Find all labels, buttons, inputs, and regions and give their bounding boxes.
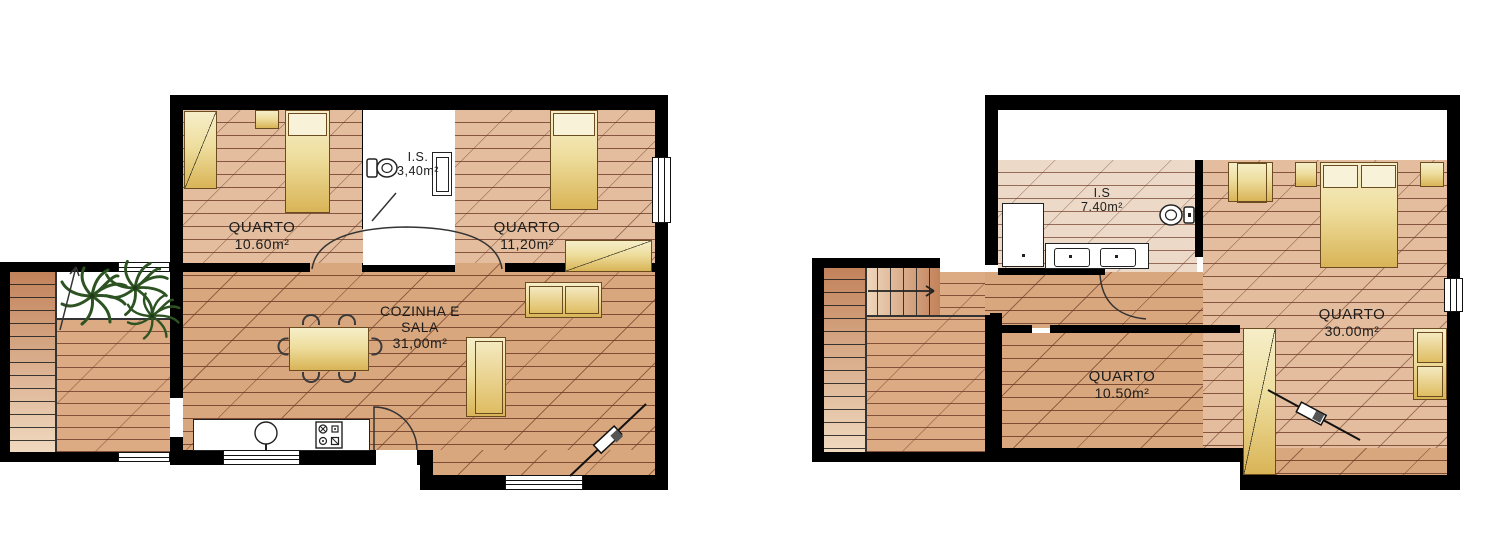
bathroom2-name: I.S — [1070, 186, 1134, 200]
nightstand-master-left — [1295, 162, 1317, 187]
living-name-line2: SALA — [358, 319, 482, 335]
floor-plan-canvas: QUARTO 10.60m² I.S. 3,40m² QUARTO 11,20m… — [0, 0, 1507, 557]
dining-chair — [278, 338, 289, 356]
gf-wall-top — [170, 95, 668, 110]
toilet-upper-icon — [1158, 202, 1196, 228]
bedroom1-area: 10.60m² — [202, 236, 322, 252]
gf-wall-bottom-kitchen-a — [170, 450, 223, 465]
wardrobe-bedroom1 — [184, 111, 217, 189]
uf-wall-bottom-right — [1240, 475, 1460, 490]
bed2-pillow — [553, 113, 595, 136]
stair-rail-line-upper — [865, 267, 867, 452]
bed-bedroom2 — [550, 110, 598, 210]
uf-bath-wall-right — [1195, 160, 1203, 257]
bathroom2-area: 7.40m² — [1070, 200, 1134, 214]
small-bedroom-wall-top-b — [1050, 325, 1240, 333]
stove-icon — [315, 421, 343, 449]
sofa-master — [1413, 328, 1447, 400]
uf-wall-left-upper — [985, 95, 998, 265]
vanity-sink — [1054, 248, 1090, 267]
bedroom2-name: QUARTO — [467, 219, 587, 236]
living-name-line1: COZINHA E — [358, 303, 482, 319]
stair-rail-line — [55, 272, 57, 452]
living-area: 31,00m² — [358, 335, 482, 351]
vanity-sink-dot — [1069, 255, 1072, 258]
gf-wall-bottom-right-b — [583, 475, 668, 490]
uf-wall-right-lower — [1447, 312, 1460, 478]
stairwell-wall-left — [812, 258, 824, 462]
gf-wall-left-mid — [170, 267, 183, 398]
master-name: QUARTO — [1292, 306, 1412, 323]
small-bedroom-name: QUARTO — [1062, 368, 1182, 385]
dining-table — [289, 327, 369, 371]
bathroom2-label: I.S 7.40m² — [1070, 186, 1134, 214]
master-label: QUARTO 30.00m² — [1292, 306, 1412, 339]
terrace-wall-left — [0, 262, 10, 462]
nightstand-master-right — [1420, 162, 1444, 187]
sofa-two-seat — [525, 282, 602, 318]
master-pillow — [1323, 165, 1358, 188]
terrace-deck-floor — [55, 320, 170, 452]
kitchen-sink-icon — [248, 420, 284, 452]
wardrobe-master-top — [1228, 162, 1273, 202]
small-bedroom-label: QUARTO 10.50m² — [1062, 368, 1182, 401]
bathroom1-area: 3,40m² — [383, 164, 453, 178]
hall-floor — [985, 272, 1240, 328]
vanity-sink-dot — [1115, 255, 1118, 258]
window-terrace-top — [118, 262, 170, 272]
stairwell-wall-bottom — [812, 452, 985, 462]
bedroom1-label: QUARTO 10.60m² — [202, 219, 322, 252]
window-terrace-bottom — [118, 452, 170, 462]
uf-wall-bottom-mid — [985, 448, 1240, 462]
bathroom1-label: I.S. 3,40m² — [383, 150, 453, 178]
bathroom1-name: I.S. — [383, 150, 453, 164]
gf-wall-bottom-right-a — [433, 475, 505, 490]
gf-wall-left-upper — [170, 95, 183, 267]
sofa-master-cushion — [1417, 366, 1443, 397]
dining-chair — [302, 314, 320, 325]
master-area: 30.00m² — [1292, 323, 1412, 339]
sofa-cushion — [529, 286, 563, 314]
bedroom1-name: QUARTO — [202, 219, 322, 236]
bedroom2-label: QUARTO 11,20m² — [467, 219, 587, 252]
stairwell-wall-top — [812, 258, 940, 268]
bed-bedroom1 — [285, 110, 330, 213]
window-living-bottom — [505, 475, 583, 490]
armchair-cushion — [475, 341, 503, 414]
bed1-pillow — [288, 113, 327, 136]
stairs-left-flight[interactable] — [824, 267, 865, 452]
palm-plant-icon — [62, 268, 126, 324]
terrace-stairs[interactable] — [10, 272, 55, 452]
stairs-top-flight[interactable] — [865, 267, 940, 317]
window-master-right — [1444, 278, 1463, 312]
gf-wall-right-upper — [655, 95, 668, 157]
nightstand-bedroom1 — [255, 110, 279, 129]
gf-wall-bottom-kitchen-b — [300, 450, 376, 465]
uf-bath-wall-bottom — [998, 268, 1095, 275]
uf-bath-door-jamb — [1095, 268, 1105, 275]
wardrobe-strip — [1243, 328, 1276, 475]
window-bedroom2-right — [652, 157, 671, 223]
gf-wall-interior-a — [183, 263, 310, 272]
bedroom2-area: 11,20m² — [467, 236, 587, 252]
small-bedroom-area: 10.50m² — [1062, 385, 1182, 401]
shower-drain — [1022, 254, 1025, 257]
planter-edge-line — [55, 318, 170, 320]
vanity-sink — [1100, 248, 1136, 267]
wardrobe-inner-line — [1237, 163, 1267, 203]
uf-wall-top — [985, 95, 1460, 110]
gf-wall-right-lower — [655, 223, 668, 478]
dining-chair — [338, 314, 356, 325]
bed-master-double — [1320, 162, 1398, 268]
sofa-cushion — [565, 286, 599, 314]
window-kitchen-bottom — [223, 450, 300, 465]
vanity-counter — [1045, 243, 1149, 269]
shower — [1002, 203, 1044, 267]
uf-wall-right-upper — [1447, 95, 1460, 278]
landing-edge-line — [865, 315, 985, 317]
gf-wall-step — [420, 450, 433, 490]
sofa-master-cushion — [1417, 332, 1443, 363]
master-pillow — [1361, 165, 1396, 188]
living-label: COZINHA E SALA 31,00m² — [358, 303, 482, 351]
small-bedroom-wall-left — [990, 313, 1002, 448]
living-floor-lower — [420, 450, 655, 477]
